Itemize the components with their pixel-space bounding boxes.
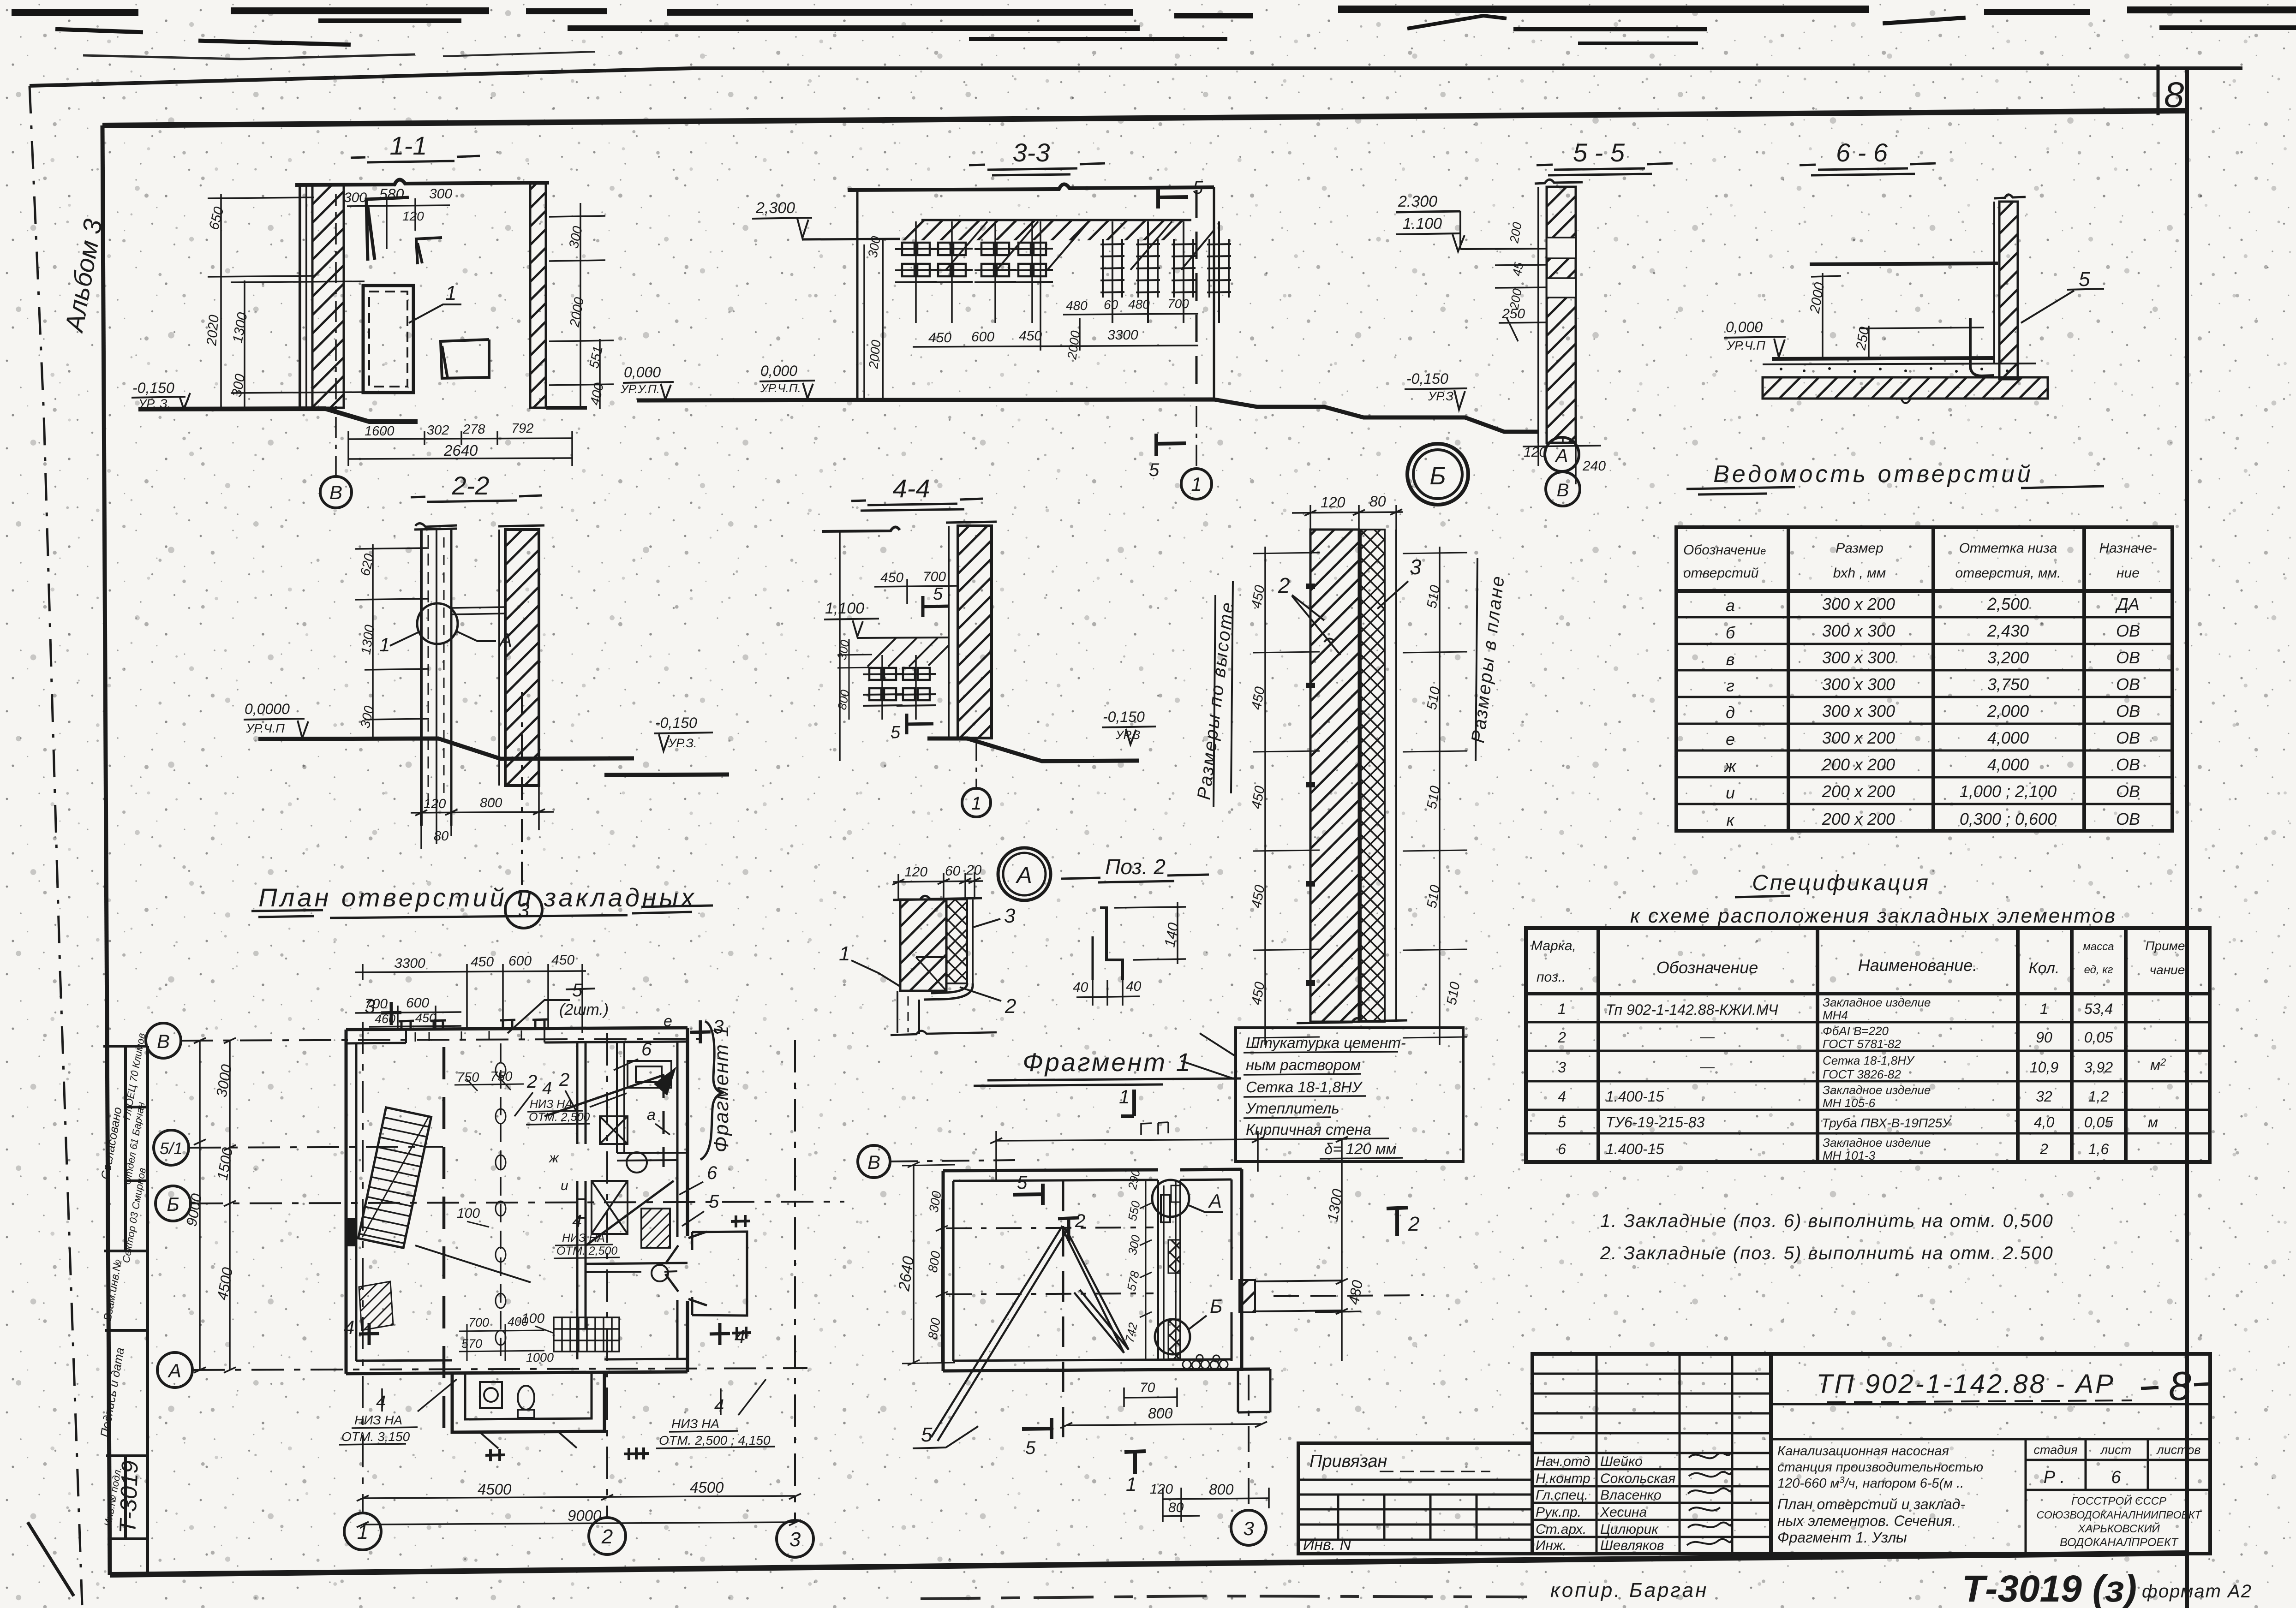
svg-text:Размер: Размер [1836, 541, 1883, 556]
svg-text:80: 80 [434, 829, 448, 844]
svg-text:УР.У.П.: УР.У.П. [620, 382, 660, 396]
svg-text:2: 2 [1557, 1029, 1566, 1046]
svg-text:3: 3 [1004, 905, 1016, 927]
svg-text:6: 6 [707, 1163, 717, 1183]
svg-text:2640: 2640 [443, 442, 478, 459]
svg-text:МН4: МН4 [1823, 1008, 1848, 1022]
svg-text:2: 2 [1075, 1211, 1085, 1231]
svg-text:НИЗ НА: НИЗ НА [530, 1098, 573, 1111]
svg-text:Б: Б [1210, 1295, 1222, 1317]
svg-text:УР.Ч.П.: УР.Ч.П. [760, 381, 801, 395]
svg-text:3300: 3300 [395, 956, 425, 971]
svg-text:300 х 300: 300 х 300 [1822, 702, 1895, 721]
svg-text:станция производительностью: станция производительностью [1777, 1460, 1983, 1475]
svg-text:bxh , мм: bxh , мм [1833, 566, 1886, 581]
svg-text:4500: 4500 [478, 1481, 512, 1498]
svg-text:ние: ние [2117, 566, 2140, 581]
svg-text:2,430: 2,430 [1987, 621, 2029, 640]
svg-text:32: 32 [2036, 1088, 2052, 1105]
svg-text:1. Закладные (поз. 6) выполн: 1. Закладные (поз. 6) выполнить на отм. … [1600, 1211, 2054, 1231]
svg-text:750: 750 [457, 1070, 479, 1085]
svg-text:1: 1 [1126, 1473, 1136, 1495]
svg-text:Назначе-: Назначе- [2099, 541, 2157, 556]
svg-text:ОВ: ОВ [2116, 702, 2140, 721]
svg-text:ж: ж [1724, 756, 1737, 775]
svg-text:600: 600 [971, 329, 994, 345]
svg-text:ГОССТРОЙ СССР: ГОССТРОЙ СССР [2071, 1495, 2166, 1507]
svg-text:3: 3 [1243, 1518, 1254, 1539]
svg-text:Закладное изделие: Закладное изделие [1823, 1083, 1931, 1097]
svg-text:5: 5 [1149, 460, 1160, 480]
svg-text:Р .: Р . [2044, 1468, 2065, 1487]
svg-text:-0,150: -0,150 [132, 380, 174, 396]
svg-text:1: 1 [971, 793, 981, 814]
svg-text:стадия: стадия [2033, 1443, 2077, 1457]
svg-text:3,750: 3,750 [1987, 675, 2029, 694]
svg-text:4500: 4500 [690, 1479, 724, 1496]
svg-text:6 - 6: 6 - 6 [1836, 138, 1888, 167]
svg-text:Обозначение: Обозначение [1656, 958, 1758, 977]
svg-text:300: 300 [344, 190, 367, 205]
svg-text:МН 105-6: МН 105-6 [1823, 1096, 1876, 1110]
svg-text:чание: чание [2150, 963, 2185, 977]
svg-text:3300: 3300 [1107, 328, 1138, 343]
svg-text:Штукатурка цемент-: Штукатурка цемент- [1246, 1034, 1406, 1051]
svg-text:1,2: 1,2 [2088, 1088, 2109, 1105]
svg-text:ед, кг: ед, кг [2084, 964, 2113, 976]
svg-text:лист: лист [2100, 1443, 2131, 1457]
svg-text:4,000: 4,000 [1987, 755, 2029, 774]
svg-text:4: 4 [714, 1396, 724, 1416]
svg-text:Закладное изделие: Закладное изделие [1823, 995, 1931, 1009]
svg-text:В: В [1557, 480, 1569, 500]
svg-text:800: 800 [480, 796, 502, 810]
svg-text:100: 100 [521, 1311, 544, 1326]
svg-text:е: е [664, 1012, 672, 1030]
svg-text:УР.З.: УР.З. [668, 736, 697, 750]
svg-text:1: 1 [1558, 1001, 1566, 1017]
svg-text:4: 4 [376, 1393, 386, 1412]
svg-text:480: 480 [1066, 298, 1088, 313]
svg-text:120: 120 [402, 209, 424, 223]
svg-text:300 х 200: 300 х 200 [1822, 595, 1895, 613]
svg-text:ОТМ. 3,150: ОТМ. 3,150 [341, 1429, 410, 1444]
svg-text:0,300 ; 0,600: 0,300 ; 0,600 [1960, 810, 2057, 828]
svg-text:4,0: 4,0 [2034, 1114, 2055, 1131]
svg-text:СОЮЗВОДОКАНАЛНИИПРОЕКТ: СОЮЗВОДОКАНАЛНИИПРОЕКТ [2037, 1509, 2202, 1521]
svg-text:120-660 м3/ч, напором 6-5(м ..: 120-660 м3/ч, напором 6-5(м .. [1777, 1475, 1964, 1491]
svg-text:60: 60 [945, 864, 961, 879]
svg-text:Фрагмент 1. Узлы: Фрагмент 1. Узлы [1777, 1529, 1907, 1546]
svg-text:0,05: 0,05 [2084, 1029, 2113, 1046]
svg-text:НИЗ НА: НИЗ НА [354, 1413, 402, 1427]
svg-text:3-3: 3-3 [1013, 138, 1050, 167]
svg-text:6: 6 [2111, 1468, 2121, 1487]
svg-text:4: 4 [572, 1212, 582, 1231]
svg-text:ОВ: ОВ [2116, 755, 2140, 774]
svg-text:План отверстий и заклад-: План отверстий и заклад- [1777, 1496, 1965, 1513]
svg-text:60: 60 [1104, 298, 1118, 312]
svg-text:1: 1 [2040, 1001, 2048, 1017]
svg-text:Фрагмент 1: Фрагмент 1 [1022, 1048, 1192, 1077]
svg-text:1: 1 [839, 942, 850, 965]
svg-text:5: 5 [1025, 1438, 1036, 1458]
svg-text:Труба ПВХ-В-19П25У: Труба ПВХ-В-19П25У [1822, 1116, 1952, 1130]
svg-text:Привязан: Привязан [1309, 1452, 1387, 1471]
svg-text:Т-3019: Т-3019 [114, 1460, 143, 1534]
svg-text:2-2: 2-2 [452, 471, 490, 500]
svg-text:450: 450 [880, 570, 903, 585]
svg-text:ОВ: ОВ [2116, 728, 2140, 747]
svg-text:450: 450 [551, 953, 574, 968]
svg-text:70: 70 [1140, 1380, 1155, 1395]
svg-text:5 - 5: 5 - 5 [1573, 138, 1625, 167]
svg-text:5: 5 [933, 584, 943, 604]
svg-text:20: 20 [966, 863, 982, 878]
svg-text:ТУ6-19-215-83: ТУ6-19-215-83 [1606, 1114, 1705, 1131]
svg-text:и: и [1726, 783, 1735, 802]
svg-text:2: 2 [1408, 1213, 1419, 1235]
svg-text:5/1: 5/1 [160, 1139, 183, 1158]
svg-text:ОВ: ОВ [2116, 648, 2140, 667]
svg-text:1-1: 1-1 [390, 131, 427, 160]
svg-text:5: 5 [1017, 1173, 1028, 1193]
svg-text:200 х 200: 200 х 200 [1822, 782, 1895, 801]
svg-text:200 х 200: 200 х 200 [1822, 755, 1895, 774]
svg-text:3: 3 [365, 995, 375, 1017]
svg-text:3: 3 [789, 1528, 801, 1551]
svg-text:80: 80 [1168, 1500, 1184, 1515]
svg-text:300 х 300: 300 х 300 [1822, 675, 1895, 694]
svg-text:ОТМ. 2,500: ОТМ. 2,500 [556, 1245, 617, 1257]
svg-text:700: 700 [923, 569, 946, 584]
svg-text:120: 120 [1150, 1482, 1173, 1497]
svg-text:450: 450 [1019, 328, 1042, 344]
svg-text:450: 450 [471, 954, 494, 970]
svg-text:к: к [1727, 810, 1735, 829]
svg-text:40: 40 [1073, 980, 1088, 995]
svg-text:Власенко: Власенко [1600, 1488, 1662, 1503]
svg-text:3: 3 [1558, 1059, 1566, 1076]
svg-text:5: 5 [891, 723, 901, 742]
svg-text:формат А2: формат А2 [2142, 1581, 2252, 1602]
svg-text:5: 5 [1193, 178, 1203, 198]
svg-text:в: в [1726, 650, 1735, 669]
svg-text:В: В [329, 482, 342, 503]
svg-text:8: 8 [2169, 1363, 2191, 1409]
svg-text:2: 2 [601, 1525, 613, 1548]
svg-text:ОВ: ОВ [2116, 810, 2140, 828]
svg-text:е: е [1726, 730, 1735, 749]
svg-text:Закладное изделие: Закладное изделие [1823, 1136, 1931, 1149]
svg-text:4: 4 [542, 1079, 552, 1098]
svg-text:ных элементов. Сечения.: ных элементов. Сечения. [1777, 1513, 1956, 1529]
svg-text:листов: листов [2156, 1443, 2200, 1457]
svg-text:120: 120 [424, 797, 446, 811]
svg-text:1,000 ; 2,100: 1,000 ; 2,100 [1960, 782, 2057, 801]
svg-text:б: б [1726, 623, 1736, 642]
svg-text:ОВ: ОВ [2116, 621, 2140, 640]
svg-text:г: г [1726, 676, 1734, 695]
svg-text:УР.Ч.П: УР.Ч.П [245, 721, 285, 735]
svg-text:Марка,: Марка, [1531, 938, 1576, 953]
svg-text:120: 120 [1524, 445, 1547, 460]
svg-text:УР.З: УР.З [1428, 389, 1454, 403]
svg-text:1,100: 1,100 [825, 600, 864, 617]
svg-text:м: м [2148, 1114, 2158, 1131]
svg-text:А: А [498, 629, 512, 651]
svg-text:600: 600 [508, 953, 532, 969]
svg-text:302: 302 [427, 423, 449, 438]
svg-text:Ведомость отверстий: Ведомость отверстий [1713, 461, 2033, 488]
svg-text:2: 2 [1278, 573, 1290, 597]
svg-text:и: и [561, 1178, 568, 1193]
svg-text:ГОСТ 3826-82: ГОСТ 3826-82 [1823, 1067, 1901, 1081]
svg-text:Т-3019 (з): Т-3019 (з) [1962, 1568, 2137, 1608]
svg-text:100: 100 [457, 1206, 480, 1221]
svg-text:1: 1 [445, 282, 456, 304]
svg-text:2,000: 2,000 [1987, 702, 2029, 721]
svg-text:3: 3 [1410, 555, 1422, 579]
svg-text:Шевляков: Шевляков [1600, 1538, 1664, 1553]
svg-text:Сокольская: Сокольская [1600, 1471, 1675, 1486]
svg-text:570: 570 [461, 1337, 482, 1351]
svg-text:120: 120 [904, 864, 927, 880]
svg-text:д: д [1726, 703, 1735, 722]
svg-text:Обозначение: Обозначение [1683, 542, 1766, 558]
svg-text:Кирпичная стена: Кирпичная стена [1246, 1121, 1371, 1138]
svg-text:УР, З.: УР, З. [138, 397, 171, 411]
svg-text:6: 6 [641, 1039, 652, 1060]
svg-text:отверстия, мм.: отверстия, мм. [1955, 566, 2061, 581]
svg-text:1: 1 [357, 1521, 368, 1543]
svg-text:1000: 1000 [526, 1351, 554, 1364]
svg-text:А: А [167, 1360, 181, 1382]
svg-text:5: 5 [1558, 1114, 1566, 1131]
svg-text:1: 1 [1191, 473, 1202, 495]
svg-text:В: В [867, 1151, 880, 1173]
svg-text:600: 600 [406, 995, 429, 1011]
svg-text:Шейко: Шейко [1600, 1454, 1643, 1469]
svg-text:План отверстий и закладных: План отверстий и закладных [258, 883, 697, 912]
svg-text:580: 580 [379, 186, 404, 202]
svg-text:—: — [1699, 1058, 1715, 1075]
svg-text:-0,150: -0,150 [1406, 370, 1448, 387]
svg-text:40: 40 [1126, 979, 1142, 994]
svg-text:700: 700 [468, 1316, 489, 1329]
svg-text:0,000: 0,000 [1726, 319, 1763, 335]
svg-text:-0,150: -0,150 [655, 715, 697, 731]
svg-text:(2шт.): (2шт.) [559, 1001, 609, 1018]
svg-text:УР.Ч.П: УР.Ч.П [1726, 339, 1765, 352]
svg-text:ФбАI В=220: ФбАI В=220 [1823, 1024, 1889, 1038]
svg-text:120: 120 [1321, 494, 1345, 511]
svg-text:ОВ: ОВ [2116, 782, 2140, 801]
svg-text:δ= 120 мм: δ= 120 мм [1324, 1140, 1396, 1157]
svg-text:Тп 902-1-142.88-КЖИ.МЧ: Тп 902-1-142.88-КЖИ.МЧ [1606, 1001, 1778, 1018]
svg-text:1: 1 [379, 634, 390, 655]
svg-text:792: 792 [511, 421, 533, 436]
svg-text:1.400-15: 1.400-15 [1606, 1141, 1664, 1157]
svg-text:отверстий: отверстий [1683, 566, 1759, 581]
svg-text:а: а [1726, 596, 1735, 615]
svg-text:5: 5 [709, 1191, 719, 1212]
svg-text:НИЗ НА: НИЗ НА [671, 1417, 719, 1431]
svg-text:Инж.: Инж. [1536, 1538, 1567, 1553]
svg-text:3,200: 3,200 [1987, 648, 2029, 667]
svg-text:Б: Б [1429, 462, 1446, 490]
svg-text:90: 90 [2036, 1029, 2052, 1046]
svg-text:4-4: 4-4 [893, 474, 930, 503]
svg-text:3,92: 3,92 [2084, 1059, 2113, 1076]
svg-text:Б: Б [167, 1193, 179, 1215]
svg-text:278: 278 [462, 422, 485, 437]
svg-text:80: 80 [1369, 493, 1386, 510]
svg-text:Нач.отд: Нач.отд [1536, 1454, 1590, 1469]
svg-text:53,4: 53,4 [2084, 1001, 2113, 1017]
svg-text:1.400-15: 1.400-15 [1606, 1088, 1664, 1105]
svg-text:Рук.пр.: Рук.пр. [1536, 1505, 1581, 1520]
svg-text:4: 4 [1558, 1088, 1566, 1105]
svg-text:200 х 200: 200 х 200 [1822, 810, 1895, 828]
svg-text:—: — [1699, 1028, 1715, 1045]
svg-text:ГОСТ 5781-82: ГОСТ 5781-82 [1823, 1037, 1901, 1051]
svg-text:Хесина: Хесина [1600, 1505, 1647, 1520]
svg-text:В: В [157, 1030, 170, 1052]
svg-text:ВОДОКАНАЛПРОЕКТ: ВОДОКАНАЛПРОЕКТ [2060, 1536, 2179, 1549]
svg-text:к схеме расположения закладных: к схеме расположения закладных элементов [1630, 905, 2117, 927]
svg-text:масса: масса [2083, 941, 2114, 953]
svg-text:750: 750 [490, 1069, 512, 1084]
svg-text:4: 4 [344, 1316, 354, 1338]
svg-text:Ст.арх.: Ст.арх. [1536, 1522, 1586, 1537]
svg-text:ТП 902-1-142.88 - АР: ТП 902-1-142.88 - АР [1816, 1369, 2115, 1399]
svg-text:45: 45 [1510, 261, 1526, 277]
svg-text:Приме-: Приме- [2145, 939, 2189, 953]
svg-text:250: 250 [1501, 306, 1525, 322]
svg-text:0,0000: 0,0000 [245, 701, 290, 717]
svg-text:Канализационная насосная: Канализационная насосная [1777, 1444, 1949, 1459]
svg-text:4: 4 [735, 1326, 745, 1347]
svg-text:ХАРЬКОВСКИЙ: ХАРЬКОВСКИЙ [2077, 1522, 2160, 1535]
svg-text:1,6: 1,6 [2088, 1141, 2109, 1157]
svg-text:Сетка 18-1,8НУ: Сетка 18-1,8НУ [1823, 1054, 1915, 1067]
svg-text:Сетка 18-1,8НУ: Сетка 18-1,8НУ [1246, 1078, 1363, 1096]
svg-text:800: 800 [1209, 1481, 1234, 1498]
svg-text:5: 5 [2079, 268, 2090, 291]
svg-text:480: 480 [1128, 297, 1150, 311]
svg-text:МН 101-3: МН 101-3 [1823, 1149, 1876, 1162]
svg-text:300 х 200: 300 х 200 [1822, 728, 1895, 747]
svg-text:6: 6 [1558, 1141, 1566, 1157]
svg-text:5: 5 [572, 980, 583, 1001]
svg-text:Утеплитель: Утеплитель [1245, 1100, 1339, 1117]
svg-text:Инв. N: Инв. N [1303, 1536, 1351, 1554]
svg-text:2.300: 2.300 [1398, 193, 1437, 210]
svg-text:300: 300 [429, 186, 452, 202]
svg-text:ж: ж [548, 1150, 559, 1166]
svg-text:2,500: 2,500 [1987, 595, 2029, 613]
svg-text:Поз. 2: Поз. 2 [1105, 855, 1166, 879]
svg-text:Спецификация: Спецификация [1752, 871, 1930, 895]
svg-text:2: 2 [2039, 1141, 2048, 1157]
svg-text:4,000: 4,000 [1987, 728, 2029, 747]
svg-text:-0,150: -0,150 [1103, 709, 1145, 725]
svg-text:поз..: поз.. [1537, 970, 1566, 985]
svg-text:2000: 2000 [866, 339, 883, 370]
svg-text:1.100: 1.100 [1403, 215, 1442, 232]
svg-text:0,000: 0,000 [760, 363, 797, 379]
svg-text:2: 2 [559, 1070, 569, 1090]
svg-text:2. Закладные (поз. 5) выполн: 2. Закладные (поз. 5) выполнить на отм. … [1600, 1243, 2054, 1263]
svg-text:копир. Барган: копир. Барган [1550, 1579, 1708, 1602]
svg-text:2: 2 [526, 1072, 537, 1092]
svg-text:Отметка низа: Отметка низа [1959, 541, 2057, 556]
svg-text:Кол.: Кол. [2029, 959, 2060, 977]
svg-text:а: а [647, 1106, 656, 1124]
svg-text:5: 5 [921, 1423, 933, 1446]
svg-text:А: А [1555, 446, 1568, 466]
svg-text:ДА: ДА [2115, 595, 2139, 613]
svg-text:2: 2 [1004, 995, 1016, 1018]
svg-text:Цилюрик: Цилюрик [1600, 1522, 1659, 1537]
svg-text:800: 800 [1148, 1405, 1173, 1422]
svg-text:ОВ: ОВ [2116, 675, 2140, 694]
svg-text:ОТМ. 2,500: ОТМ. 2,500 [529, 1111, 590, 1124]
svg-text:240: 240 [1582, 459, 1606, 474]
svg-text:ным раствором: ным раствором [1246, 1056, 1361, 1073]
svg-text:НИЗ НА: НИЗ НА [562, 1232, 605, 1245]
svg-text:А: А [1208, 1190, 1222, 1212]
svg-text:2,300: 2,300 [755, 199, 795, 217]
svg-text:А: А [1015, 862, 1032, 888]
svg-text:Наименование.: Наименование. [1858, 956, 1977, 975]
svg-text:1: 1 [1119, 1086, 1130, 1108]
svg-text:700: 700 [1167, 297, 1189, 311]
svg-text:10,9: 10,9 [2030, 1059, 2058, 1076]
svg-text:0,000: 0,000 [624, 364, 661, 381]
svg-text:450: 450 [928, 330, 951, 345]
svg-text:0,05: 0,05 [2084, 1114, 2113, 1131]
svg-text:2020: 2020 [204, 314, 222, 347]
svg-text:1600: 1600 [365, 424, 395, 439]
svg-text:Н.контр: Н.контр [1536, 1471, 1590, 1486]
svg-text:ОТМ. 2,500 ; 4,150: ОТМ. 2,500 ; 4,150 [659, 1433, 771, 1447]
svg-text:300 х 300: 300 х 300 [1822, 648, 1895, 667]
svg-text:Гл.спец.: Гл.спец. [1536, 1488, 1588, 1503]
svg-text:300 х 300: 300 х 300 [1822, 621, 1895, 640]
